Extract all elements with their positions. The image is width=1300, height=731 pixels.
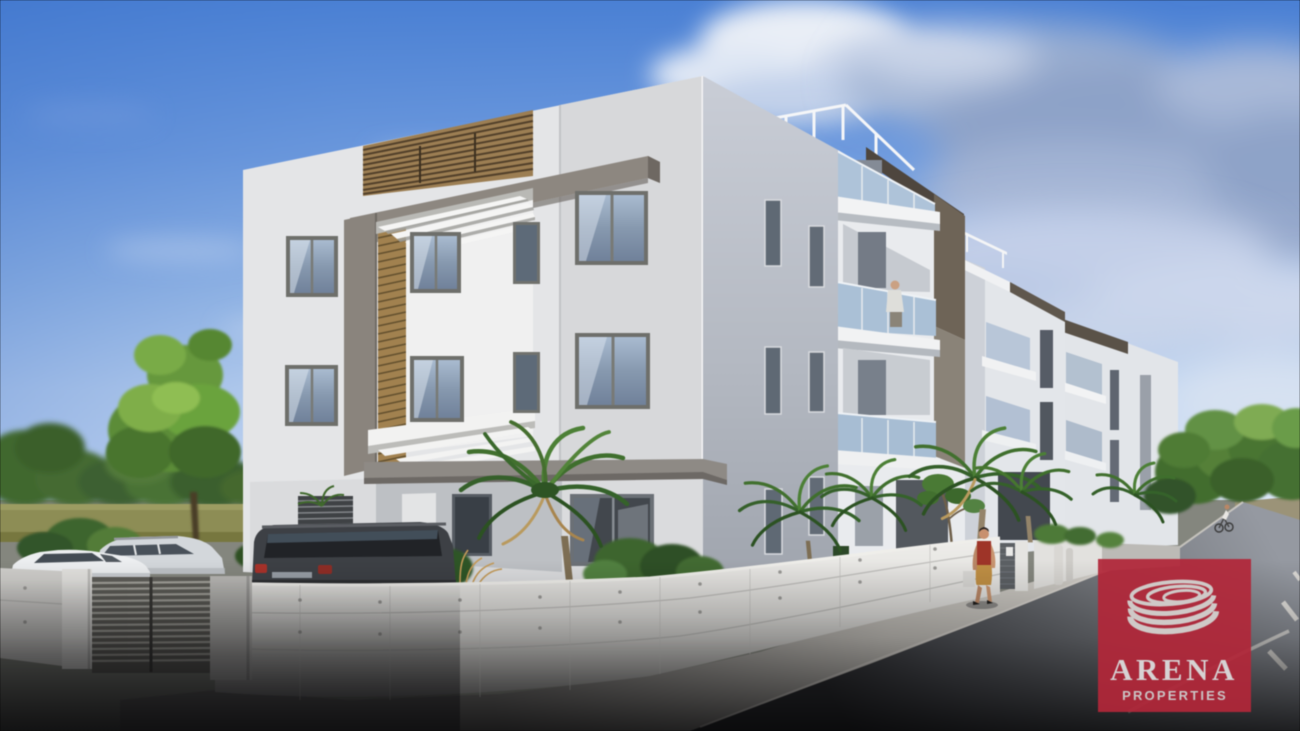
svg-text:ARENA: ARENA bbox=[1110, 652, 1238, 687]
svg-text:PROPERTIES: PROPERTIES bbox=[1122, 688, 1228, 703]
